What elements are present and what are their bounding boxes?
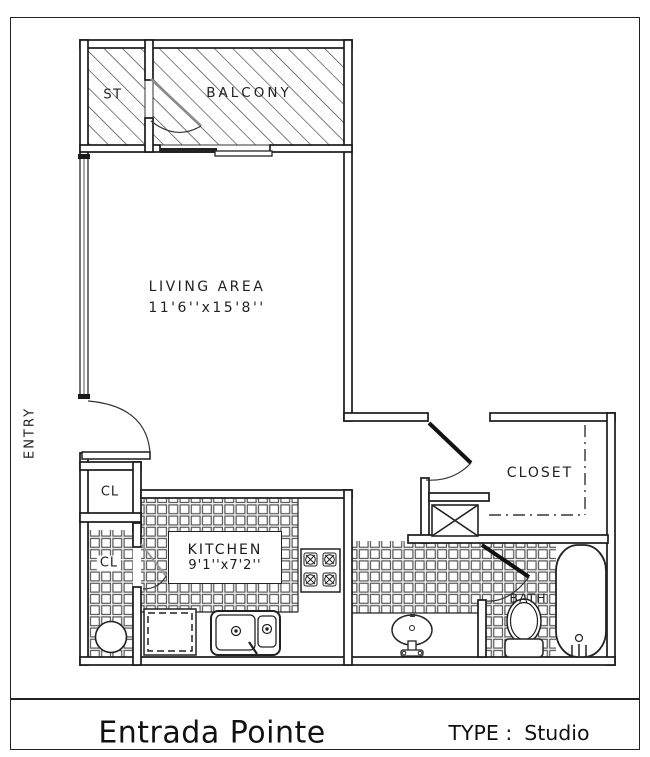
- closet-lower-label: CL: [97, 556, 121, 571]
- toilet-fixture: [505, 599, 543, 657]
- utility-box: [432, 505, 478, 536]
- living-area-dimensions: 11'6''x15'8'': [148, 298, 265, 319]
- bathtub-fixture: [556, 545, 606, 657]
- hall-door: [426, 423, 471, 480]
- sliding-door: [160, 148, 272, 156]
- closet-label: CLOSET: [507, 465, 573, 481]
- vanity-sink-fixture: [392, 614, 432, 656]
- kitchen-sink-fixture: [211, 611, 280, 655]
- floorplan-page: ST BALCONY LIVING AREA 11'6''x15'8'' ENT…: [0, 0, 650, 757]
- stove-fixture: [301, 549, 340, 592]
- water-heater-fixture: [96, 622, 127, 653]
- storage-label: ST: [103, 88, 122, 103]
- hall-tile-floor: [352, 541, 486, 613]
- property-name: Entrada Pointe: [98, 716, 325, 751]
- unit-type-label: TYPE :: [448, 721, 512, 745]
- closet-upper-label: CL: [101, 485, 119, 500]
- bath-label: BATH: [509, 591, 546, 606]
- floorplan-drawing: [0, 0, 650, 757]
- unit-type: TYPE : Studio: [448, 721, 589, 745]
- living-area-label: LIVING AREA 11'6''x15'8'': [148, 277, 265, 319]
- title-block-divider: [10, 698, 640, 700]
- balcony-label: BALCONY: [206, 85, 291, 101]
- kitchen-dimensions: 9'1''x7'2'': [188, 558, 261, 573]
- refrigerator-fixture: [144, 609, 196, 655]
- entry-label: ENTRY: [23, 407, 38, 459]
- living-area-name: LIVING AREA: [148, 277, 265, 298]
- kitchen-label-box: KITCHEN 9'1''x7'2'': [168, 531, 282, 584]
- entry-door: [82, 401, 150, 459]
- unit-type-value: Studio: [524, 721, 589, 745]
- kitchen-name: KITCHEN: [188, 542, 263, 558]
